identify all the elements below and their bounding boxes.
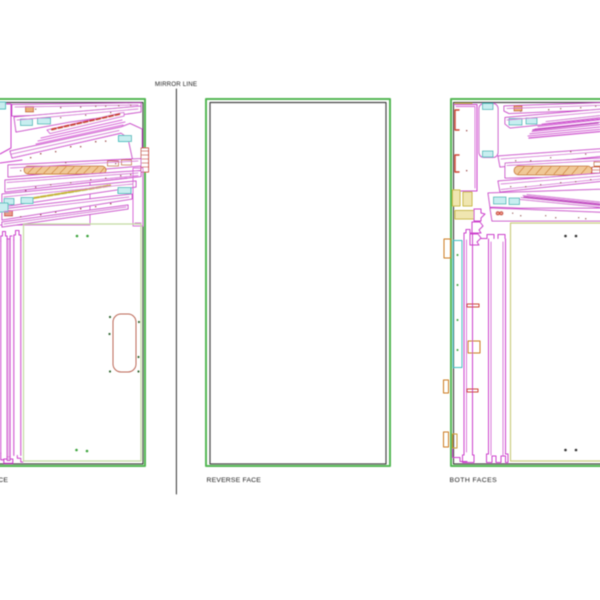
svg-text:MIRROR LINE: MIRROR LINE: [155, 81, 197, 88]
svg-text:REVERSE FACE: REVERSE FACE: [207, 477, 262, 484]
svg-text:BOTH FACES: BOTH FACES: [450, 477, 498, 484]
svg-text:OBVERSE FACE: OBVERSE FACE: [0, 477, 8, 484]
